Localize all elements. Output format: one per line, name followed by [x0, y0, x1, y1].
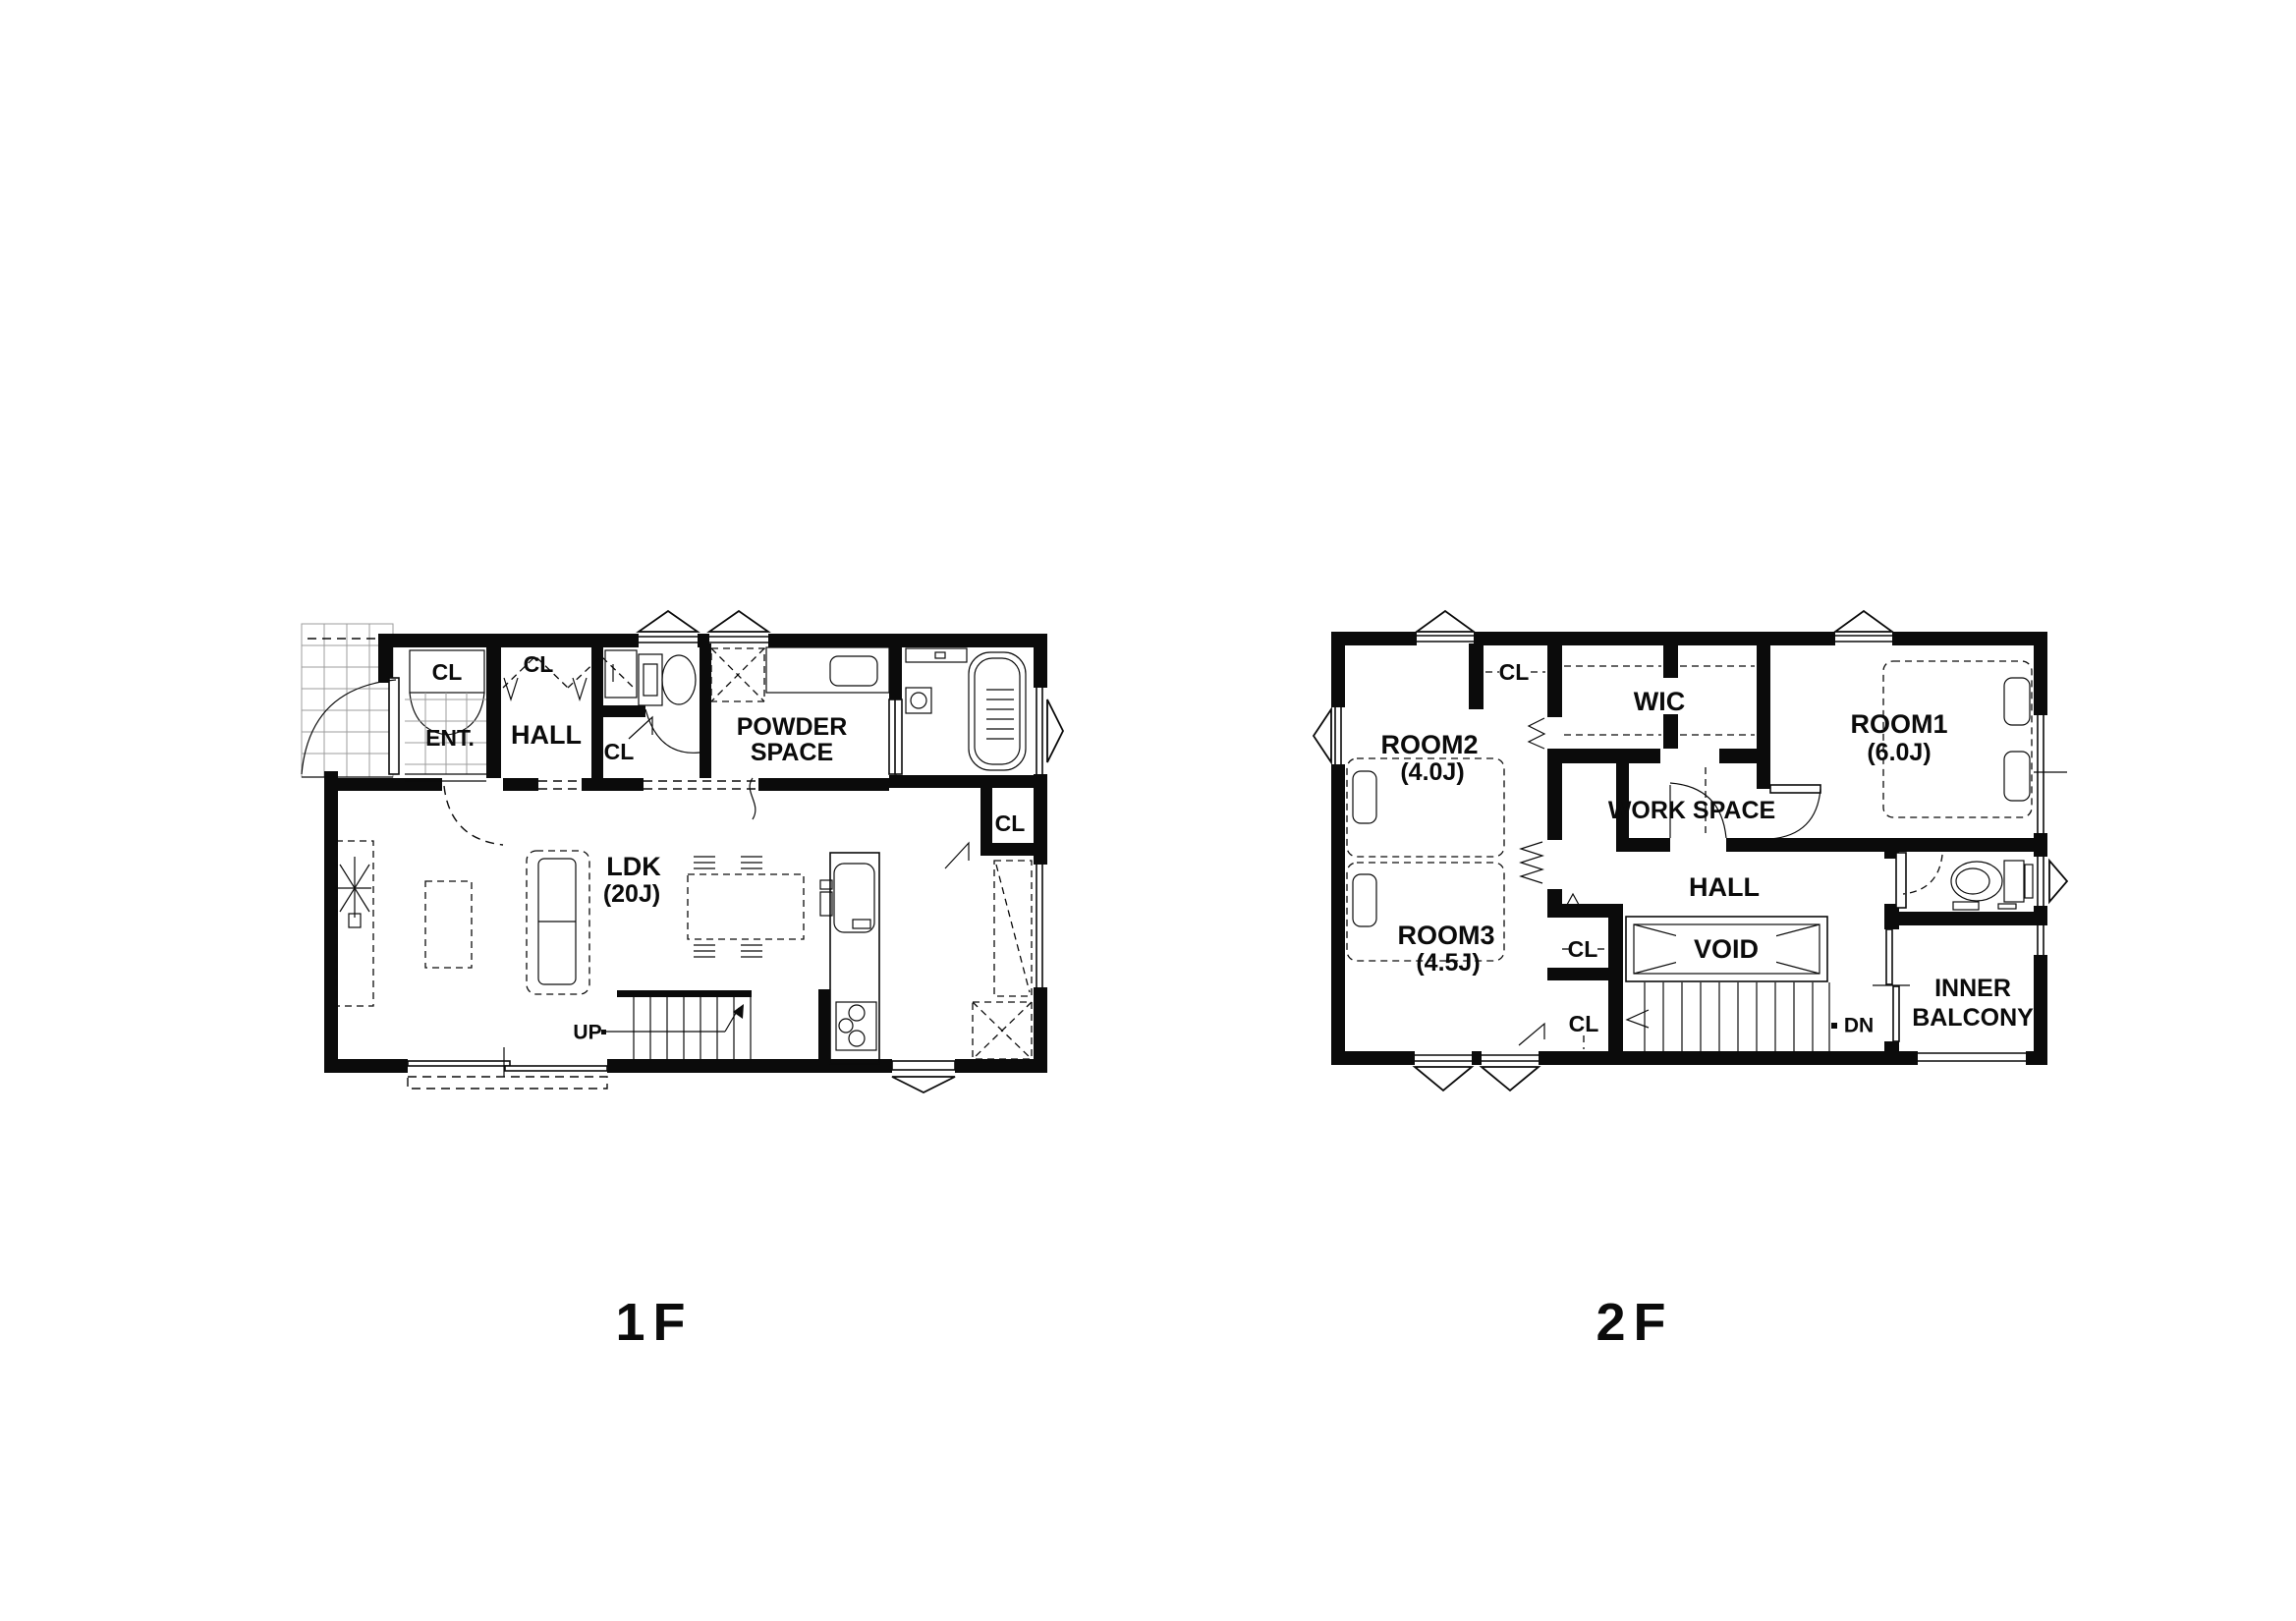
floor2-plan: ROOM2 (4.0J) CL ROOM3 (4.5J) WIC	[1314, 611, 2067, 1352]
label-hall-2f: HALL	[1689, 872, 1760, 902]
vent-triangle-icon	[1415, 1067, 1472, 1090]
front-door	[389, 678, 399, 774]
label-cl-bath: CL	[995, 810, 1026, 836]
stairs-up: UP	[573, 990, 752, 1059]
label-ldk-size: (20J)	[603, 880, 660, 908]
folding-door-icon	[504, 678, 518, 699]
toilet-tank	[639, 654, 662, 705]
label-cl-room2: CL	[1499, 659, 1530, 685]
vent-triangle-icon	[1417, 611, 1474, 632]
vent-triangle-icon	[1047, 699, 1063, 762]
toilet-tank	[2004, 861, 2024, 902]
wc-vanity	[605, 650, 637, 698]
label-balcony-1: INNER	[1934, 975, 2011, 1002]
vent-triangle-icon	[709, 611, 768, 632]
label-ent: ENT.	[425, 725, 475, 751]
folding-door-icon	[1529, 718, 1544, 749]
deck-outline	[408, 1077, 607, 1089]
label-room3-size: (4.5J)	[1416, 949, 1480, 977]
stove-icon	[836, 1002, 876, 1050]
dining-table	[688, 857, 804, 957]
toilet-icon	[662, 655, 696, 704]
label-work-space: WORK SPACE	[1608, 797, 1775, 824]
balcony-door	[1886, 929, 1892, 984]
coffee-table	[425, 881, 472, 968]
label-hall: HALL	[511, 720, 582, 750]
floor1-plan: CL ENT. CL HALL CL	[302, 611, 1063, 1352]
vent-triangle-icon	[639, 611, 698, 632]
work-space: WORK SPACE	[1608, 767, 1775, 838]
chair-icon	[741, 945, 762, 957]
pillow	[1353, 771, 1376, 823]
stairs-down: DN	[1627, 982, 1874, 1051]
wic: WIC	[1564, 666, 1755, 735]
room1: ROOM1 (6.0J)	[1770, 661, 2032, 839]
label-up: UP	[573, 1022, 601, 1044]
pillow	[1353, 874, 1376, 926]
void-stairs: VOID DN	[1626, 917, 1874, 1051]
label-room3: ROOM3	[1397, 921, 1494, 950]
label-powder-1: POWDER	[737, 713, 848, 741]
bathtub-icon	[969, 652, 1026, 770]
sliding-door-icon	[1519, 1024, 1544, 1045]
label-cl-upper: CL	[1568, 936, 1598, 962]
kitchen-counter	[818, 853, 879, 1064]
label-ldk: LDK	[606, 852, 661, 881]
bathroom	[889, 648, 1026, 774]
label-cl-wc: CL	[604, 739, 635, 764]
room3: ROOM3 (4.5J)	[1347, 863, 1504, 977]
vent-triangle-icon	[1835, 611, 1892, 632]
bath-counter	[906, 648, 967, 662]
floor2-caption: 2F	[1596, 1293, 1673, 1352]
accordion-door-icon	[1521, 842, 1542, 883]
pillow	[2004, 752, 2030, 801]
hall-2f: HALL	[1689, 872, 1760, 902]
pillow	[2004, 678, 2030, 725]
plant-icon	[338, 857, 371, 927]
toilet-door	[1896, 853, 1906, 908]
label-dn: DN	[1844, 1015, 1874, 1037]
wc-door-swing	[645, 709, 700, 753]
inner-balcony: INNER BALCONY	[1873, 929, 2034, 1061]
label-room2: ROOM2	[1380, 730, 1478, 759]
room1-door-swing	[1770, 789, 1820, 839]
floor1-caption: 1F	[615, 1293, 693, 1352]
sliding-door-icon	[629, 717, 652, 739]
label-wic: WIC	[1634, 687, 1685, 716]
label-room1: ROOM1	[1850, 709, 1947, 739]
label-cl-hall: CL	[524, 651, 554, 677]
door-swing-dashed	[444, 786, 503, 845]
casement-window-icon	[2049, 861, 2067, 902]
label-room2-size: (4.0J)	[1400, 758, 1464, 786]
label-void: VOID	[1694, 934, 1759, 964]
label-cl-entrance: CL	[432, 659, 463, 685]
sink-icon	[830, 656, 877, 686]
chair-icon	[694, 945, 715, 957]
vent-triangle-icon	[892, 1077, 955, 1092]
label-powder-2: SPACE	[751, 739, 833, 766]
sofa	[527, 851, 589, 994]
entrance: CL ENT.	[302, 650, 486, 781]
chair-icon	[741, 857, 762, 868]
label-cl-lower: CL	[1569, 1011, 1599, 1036]
floorplan-canvas: CL ENT. CL HALL CL	[0, 0, 2296, 1621]
stair-arrow-icon	[1627, 1010, 1649, 1028]
stair-arrow-icon	[733, 1004, 744, 1019]
folding-door-icon	[945, 843, 969, 868]
label-room1-size: (6.0J)	[1867, 739, 1931, 766]
floorplan-drawing: CL ENT. CL HALL CL	[0, 0, 2296, 1621]
chair-icon	[694, 857, 715, 868]
door-curve	[750, 778, 756, 819]
shower-mixer	[906, 688, 931, 713]
toilet-2f	[1896, 853, 2033, 910]
vent-triangle-icon	[1314, 709, 1331, 762]
toilet-door-swing	[1903, 855, 1942, 894]
front-door-swing	[302, 680, 396, 774]
powder-space: POWDER SPACE	[711, 647, 889, 766]
vent-triangle-icon	[1482, 1067, 1539, 1090]
ldk-room: LDK (20J)	[336, 841, 879, 1064]
toilet-icon	[1951, 862, 2002, 901]
label-balcony-2: BALCONY	[1912, 1004, 2034, 1032]
room1-door	[1770, 785, 1820, 793]
folding-door-icon	[573, 678, 587, 699]
kitchen-sink	[834, 864, 874, 932]
room2: ROOM2 (4.0J) CL	[1347, 659, 1545, 883]
